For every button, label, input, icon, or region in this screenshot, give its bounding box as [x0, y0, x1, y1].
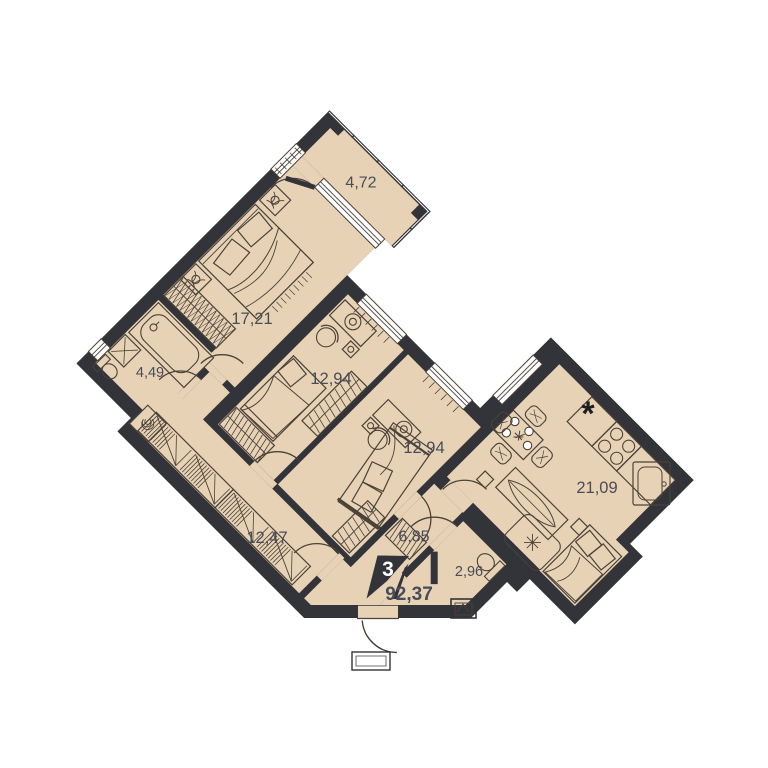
svg-text:12,94: 12,94	[310, 370, 351, 388]
svg-text:*: *	[581, 395, 595, 433]
svg-text:12,94: 12,94	[403, 439, 444, 457]
svg-text:4,72: 4,72	[345, 175, 376, 192]
svg-text:6,85: 6,85	[398, 529, 429, 546]
svg-text:2,96: 2,96	[455, 564, 483, 580]
svg-text:3: 3	[382, 558, 394, 581]
svg-text:17,21: 17,21	[231, 310, 272, 328]
svg-text:21,09: 21,09	[576, 479, 617, 497]
svg-text:12,47: 12,47	[246, 529, 287, 547]
svg-text:92,37: 92,37	[385, 584, 433, 605]
svg-text:4,49: 4,49	[136, 365, 164, 381]
